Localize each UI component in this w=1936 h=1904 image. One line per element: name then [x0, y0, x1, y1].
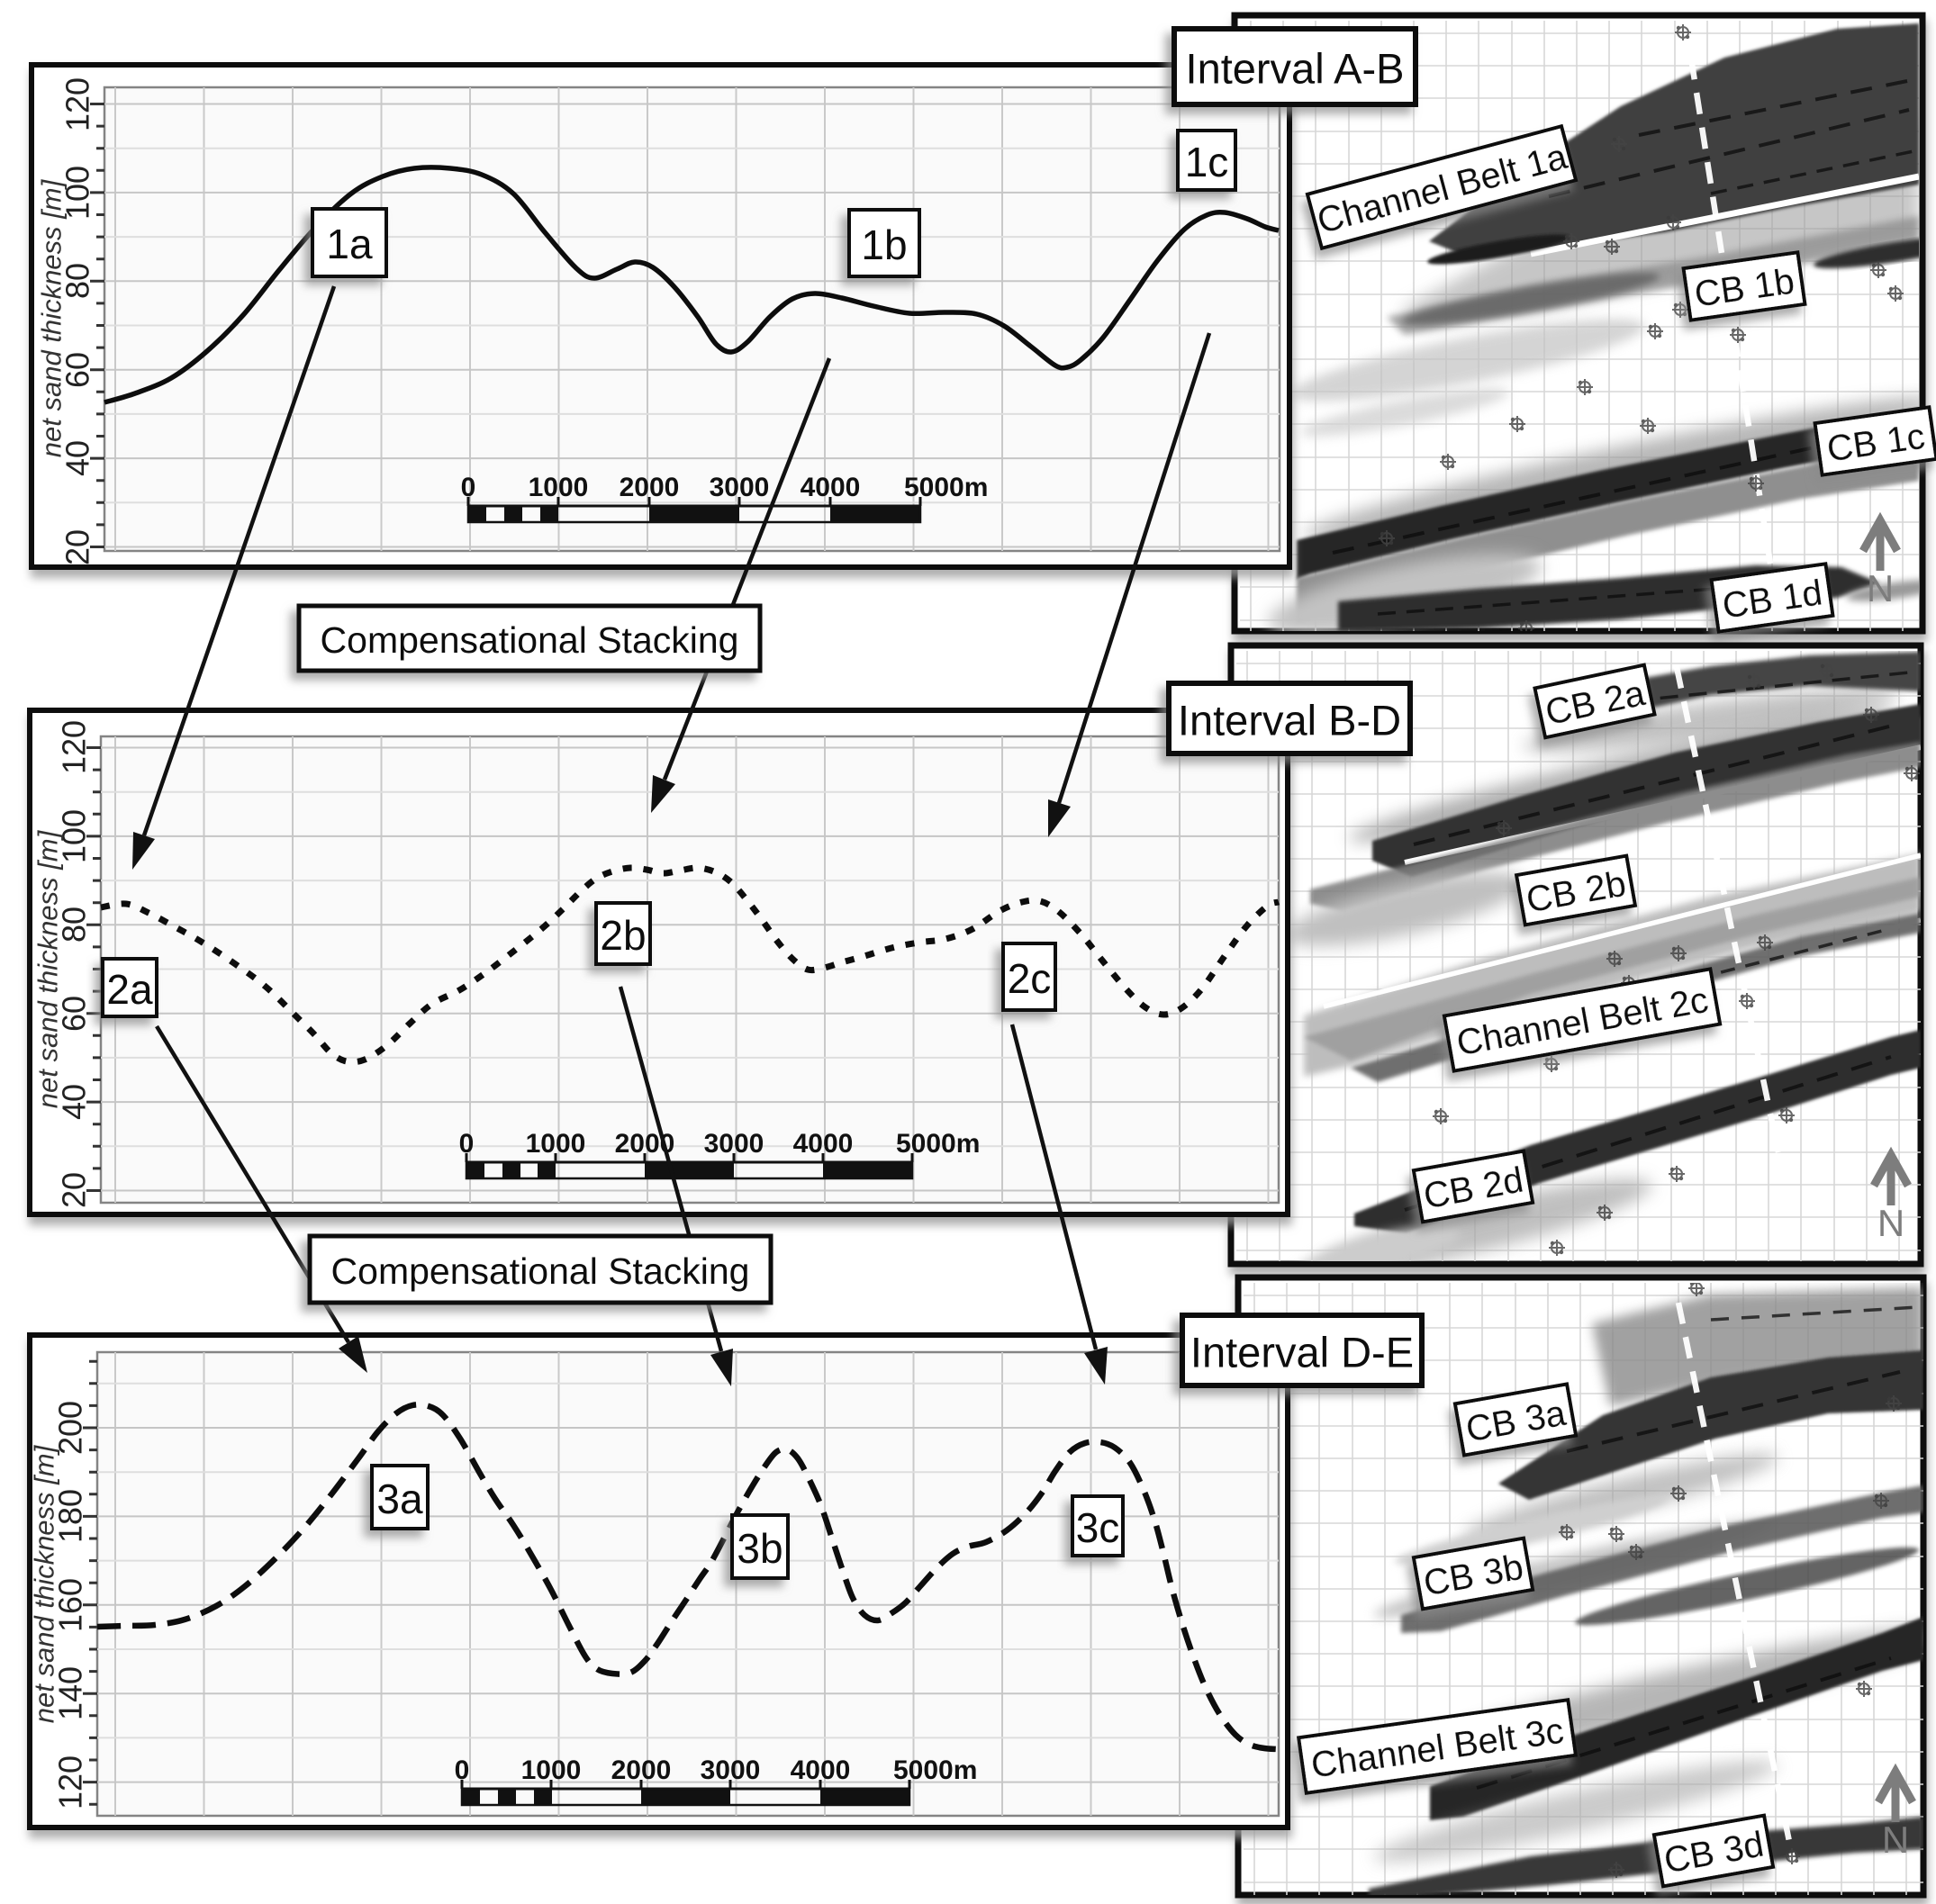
svg-text:5000m: 5000m — [904, 473, 988, 502]
svg-text:N: N — [1877, 1202, 1904, 1244]
svg-text:net sand thickness [m]: net sand thickness [m] — [32, 829, 64, 1108]
svg-text:N: N — [1867, 567, 1894, 609]
svg-text:3c: 3c — [1076, 1504, 1120, 1551]
svg-text:120: 120 — [56, 720, 93, 774]
svg-text:1b: 1b — [861, 221, 907, 268]
svg-text:Compensational Stacking: Compensational Stacking — [331, 1250, 750, 1292]
svg-text:2c: 2c — [1008, 955, 1052, 1002]
svg-text:net sand thickness [m]: net sand thickness [m] — [29, 1444, 60, 1723]
svg-text:2a: 2a — [106, 966, 153, 1013]
svg-text:20: 20 — [56, 1172, 93, 1208]
svg-text:120: 120 — [52, 1755, 89, 1809]
svg-text:20: 20 — [59, 529, 96, 565]
svg-text:120: 120 — [59, 77, 96, 131]
svg-text:Compensational Stacking: Compensational Stacking — [321, 619, 739, 661]
svg-text:5000m: 5000m — [893, 1755, 977, 1785]
svg-text:Interval B-D: Interval B-D — [1178, 697, 1401, 744]
svg-text:1a: 1a — [326, 221, 373, 267]
svg-text:N: N — [1882, 1818, 1909, 1861]
svg-text:3a: 3a — [376, 1475, 423, 1522]
svg-text:Interval A-B: Interval A-B — [1186, 45, 1405, 93]
svg-text:Interval D-E: Interval D-E — [1190, 1329, 1414, 1376]
svg-text:2b: 2b — [600, 912, 646, 959]
svg-text:3b: 3b — [737, 1525, 783, 1572]
svg-text:net sand thickness [m]: net sand thickness [m] — [36, 178, 68, 457]
svg-text:5000m: 5000m — [896, 1129, 980, 1159]
svg-text:1c: 1c — [1185, 139, 1229, 185]
